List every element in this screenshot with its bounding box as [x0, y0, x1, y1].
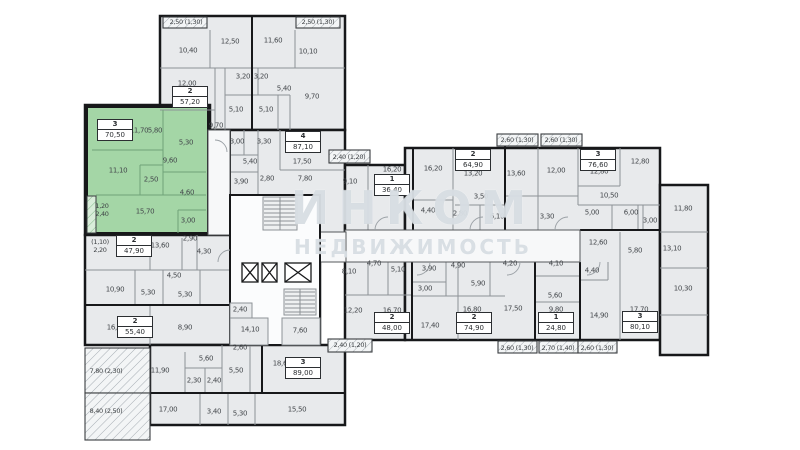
- room-area-label: 3,20: [236, 74, 250, 81]
- room-area-label: 5,30: [233, 411, 247, 418]
- room-area-label: 11,90: [151, 368, 170, 375]
- room-area-label: 4,20: [503, 261, 517, 268]
- room-area-label: 3,20: [254, 74, 268, 81]
- balcony-area-label: 2,50 (1,30): [302, 19, 335, 26]
- room-area-label: 3,30: [540, 214, 554, 221]
- room-area-label: 16,20: [383, 167, 402, 174]
- room-area-label: 10,90: [106, 287, 125, 294]
- room-area-label: 5,30: [141, 290, 155, 297]
- room-area-label: 13,20: [464, 171, 483, 178]
- apartment-badge-selected[interactable]: 370,50: [97, 119, 133, 141]
- room-area-label: 2,90: [183, 236, 197, 243]
- room-area-label: 4,10: [549, 261, 563, 268]
- room-area-label: 4,40: [421, 208, 435, 215]
- room-area-label: 4,50: [167, 273, 181, 280]
- room-area-label: 4,40: [585, 268, 599, 275]
- room-area-label: 5,60: [548, 293, 562, 300]
- room-area-label: 13,60: [507, 171, 526, 178]
- room-area-label: 8,10: [342, 269, 356, 276]
- room-area-label: 17,40: [421, 323, 440, 330]
- room-area-label: 4,60: [180, 190, 194, 197]
- apartment-badge[interactable]: 487,10: [285, 131, 321, 153]
- balcony-area-label: 2,50 (1,30): [170, 19, 203, 26]
- room-area-label: 4,90: [451, 263, 465, 270]
- room-area-label: 10,10: [299, 49, 318, 56]
- room-area-label: 9,70: [305, 94, 319, 101]
- room-area-label: 3,00: [418, 286, 432, 293]
- room-area-label: 9,70: [209, 123, 223, 130]
- room-area-label: 5,40: [277, 86, 291, 93]
- balcony-area-label: 2,40 (1,20): [333, 154, 366, 161]
- room-area-label: 8,90: [178, 325, 192, 332]
- room-area-label: 5,00: [585, 210, 599, 217]
- balcony-area-label: 2,60 (1,30): [581, 345, 614, 352]
- room-area-label: 2,40: [207, 378, 221, 385]
- room-area-label: 5,60: [199, 356, 213, 363]
- room-area-label: 7,80: [298, 176, 312, 183]
- room-area-label: 3,30: [257, 139, 271, 146]
- room-area-label: 2,50: [144, 177, 158, 184]
- room-area-label: 11,10: [109, 168, 128, 175]
- balcony-area-label: 2,70 (1,40): [542, 345, 575, 352]
- apartment-badge[interactable]: 274,90: [456, 312, 492, 334]
- room-area-label: 12,00: [547, 168, 566, 175]
- room-area-label: 6,00: [624, 210, 638, 217]
- apartment-badge[interactable]: 264,90: [455, 149, 491, 171]
- room-area-label: 14,90: [590, 313, 609, 320]
- room-area-label: 7,60: [293, 328, 307, 335]
- room-area-label: 3,90: [422, 266, 436, 273]
- floor-plan-page: 10,4012,5011,6010,1012,003,203,205,409,7…: [0, 0, 800, 450]
- room-area-label: 5,10: [229, 107, 243, 114]
- room-area-label: 12,80: [631, 159, 650, 166]
- room-area-label: 2,40: [233, 307, 247, 314]
- room-area-label: 5,30: [179, 140, 193, 147]
- room-area-label: 10,30: [674, 286, 693, 293]
- room-area-label: 5,10: [259, 107, 273, 114]
- room-area-label: 3,50: [474, 194, 488, 201]
- apartment-badge[interactable]: 124,80: [538, 312, 574, 334]
- room-area-label: 5,80: [148, 128, 162, 135]
- apartment-badge[interactable]: 247,90: [116, 235, 152, 257]
- room-area-label: 5,50: [229, 368, 243, 375]
- room-area-label: 9,60: [163, 158, 177, 165]
- room-area-label: 12,60: [589, 240, 608, 247]
- room-area-label: 6,10: [490, 214, 504, 221]
- balcony-area-label: (1,10)2,20: [91, 239, 109, 255]
- apartment-badge[interactable]: 380,10: [622, 311, 658, 333]
- room-area-label: 15,70: [136, 209, 155, 216]
- balcony-area-label: 2,40 (1,20): [334, 342, 367, 349]
- room-area-label: 11,80: [674, 206, 693, 213]
- balcony-area-label: 2,60 (1,30): [501, 137, 534, 144]
- room-area-label: 4,70: [367, 261, 381, 268]
- balcony-area-label: 7,80 (2,30): [90, 368, 123, 375]
- room-area-label: 5,10: [391, 267, 405, 274]
- balcony-area-label: 1,202,40: [95, 203, 108, 219]
- apartment-badge[interactable]: 257,20: [172, 86, 208, 108]
- room-area-label: 2,30: [187, 378, 201, 385]
- room-area-label: 13,60: [151, 243, 170, 250]
- room-area-label: 17,50: [293, 159, 312, 166]
- room-area-label: 12,50: [221, 39, 240, 46]
- label-layer: 10,4012,5011,6010,1012,003,203,205,409,7…: [0, 0, 800, 450]
- apartment-badge[interactable]: 136,40: [374, 174, 410, 196]
- apartment-badge[interactable]: 255,40: [117, 316, 153, 338]
- balcony-area-label: 2,60 (1,30): [501, 345, 534, 352]
- room-area-label: 3,40: [207, 409, 221, 416]
- room-area-label: 4,30: [197, 249, 211, 256]
- room-area-label: 17,50: [504, 306, 523, 313]
- room-area-label: 9,10: [343, 179, 357, 186]
- room-area-label: 10,40: [179, 48, 198, 55]
- room-area-label: 16,20: [424, 166, 443, 173]
- room-area-label: 15,50: [288, 407, 307, 414]
- room-area-label: 17,00: [159, 407, 178, 414]
- room-area-label: 3,00: [181, 218, 195, 225]
- room-area-label: 11,60: [264, 38, 283, 45]
- room-area-label: 14,10: [241, 327, 260, 334]
- room-area-label: 3,00: [643, 218, 657, 225]
- apartment-badge[interactable]: 376,60: [580, 149, 616, 171]
- room-area-label: 2,80: [453, 211, 467, 218]
- room-area-label: 5,90: [471, 281, 485, 288]
- room-area-label: 12,20: [344, 308, 363, 315]
- room-area-label: 13,10: [663, 246, 682, 253]
- room-area-label: 5,30: [178, 292, 192, 299]
- balcony-area-label: 2,60 (1,30): [545, 137, 578, 144]
- room-area-label: 3,90: [234, 179, 248, 186]
- room-area-label: 2,60: [233, 345, 247, 352]
- room-area-label: 10,50: [600, 193, 619, 200]
- balcony-area-label: 8,40 (2,50): [90, 408, 123, 415]
- room-area-label: 2,80: [260, 176, 274, 183]
- room-area-label: 3,00: [230, 139, 244, 146]
- apartment-badge[interactable]: 389,00: [285, 357, 321, 379]
- apartment-badge[interactable]: 248,00: [374, 312, 410, 334]
- room-area-label: 5,40: [243, 159, 257, 166]
- room-area-label: 5,80: [628, 248, 642, 255]
